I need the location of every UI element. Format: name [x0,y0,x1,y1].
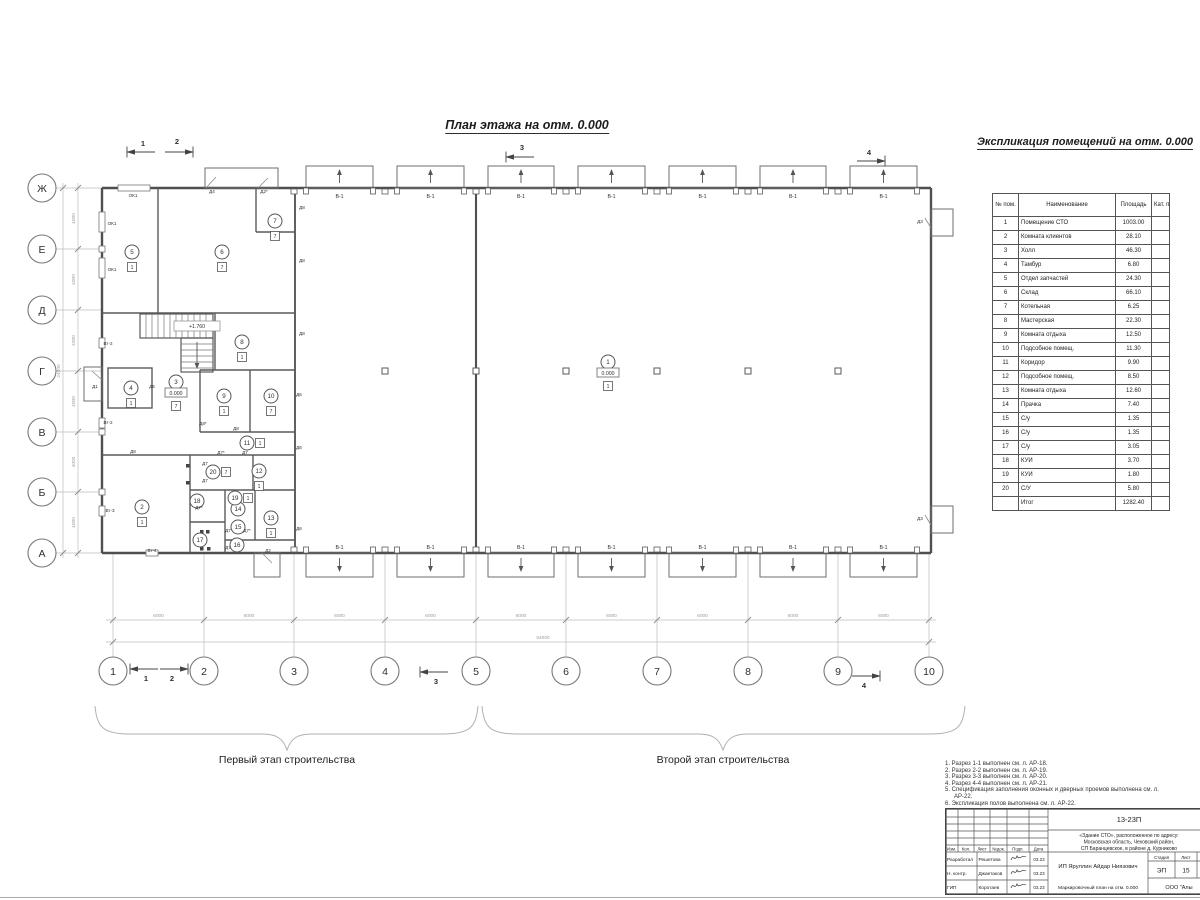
table-cell: Подсобное помещ. [1019,371,1116,385]
room-number: 13 [268,515,275,522]
table-cell: 8 [993,315,1019,329]
gate-arrow-head [609,169,614,175]
table-cell: 11 [993,357,1019,371]
table-cell [993,497,1019,511]
gate-post [758,547,763,553]
table-row: 11Коридор9.90 [993,357,1170,371]
door-label: Д7* [217,450,225,455]
gate-label: В-1 [335,194,343,200]
project-address: «Здание СТО», расположенное по адресу:Мо… [1079,833,1178,852]
table-row: 15С/у1.35 [993,413,1170,427]
column [563,368,569,374]
gate-arrow-head [519,566,524,572]
gate-arrow-head [519,169,524,175]
dimension-label: 24000 [56,364,62,378]
shaft-symbol [186,481,190,485]
table-cell [1152,483,1170,497]
floor-type-number: 1 [259,441,262,447]
table-cell [1152,427,1170,441]
table-cell [1152,259,1170,273]
table-cell [1152,287,1170,301]
sheet-notes: 1. Разрез 1-1 выполнен см. л. АР-18.2. Р… [945,761,1165,807]
shaft-symbol [186,464,190,468]
door-label: Д1 [92,384,98,389]
wall-pilaster [291,189,297,194]
stamp-text: Кол. [962,847,971,852]
table-row: 13Комната отдыха12.60 [993,385,1170,399]
room-table-body: 1Помещение СТО1003.002Комната клиентов28… [993,217,1170,511]
gate-label: В-1 [698,194,706,200]
table-cell: 5.80 [1116,483,1152,497]
door-label: Д3 [917,219,923,224]
table-cell: Котельная [1019,301,1116,315]
plan-title-text: План этажа на отм. 0.000 [445,118,609,134]
sheet-column-label: Лист [1181,855,1191,860]
door-label: Д5 [149,384,155,389]
table-cell: 28.10 [1116,231,1152,245]
grid-bubble-label: 7 [654,666,660,678]
gate-post [576,547,581,553]
room-number: 15 [235,524,242,531]
room-number: 17 [197,537,204,544]
stage2-label: Второй этап строительства [657,754,790,766]
door-label: Д6 [296,392,302,397]
gate-arrow-head [791,169,796,175]
note-line: 3. Разрез 3-3 выполнен см. л. АР-20. [945,774,1165,781]
stamp-text: Изм. [947,847,956,852]
table-cell: 7.40 [1116,399,1152,413]
table-cell: 66.10 [1116,287,1152,301]
gate-post [848,188,853,194]
floor-type-number: 1 [141,520,144,526]
wall-pilaster [654,189,660,194]
table-cell: 15 [993,413,1019,427]
stamp-text: 03.23 [1033,885,1045,890]
room-number: 4 [129,385,133,392]
door-label: Д7 [202,461,208,466]
dimension-label: 54000 [536,635,550,641]
table-cell: 3.70 [1116,455,1152,469]
dimension-label: 6000 [516,613,527,619]
room-number: 2 [140,504,144,511]
signature-squiggle [1011,870,1026,874]
stamp-text: Разработал [947,857,973,863]
gate-arrow-head [609,566,614,572]
company-name: ООО "Алы [1165,885,1192,891]
stage-value: ЭП [1157,868,1167,875]
table-row: 10Подсобное помещ.11.30 [993,343,1170,357]
gate-arrow-head [337,169,342,175]
table-header-cell: Наименование [1019,194,1116,217]
gate-label: В-1 [426,194,434,200]
door-label: Д8 [299,205,305,210]
door-label: Вт-2 [103,420,113,425]
table-cell: 11.30 [1116,343,1152,357]
door-label: Вт-3 [105,508,115,513]
gate-post [667,188,672,194]
door-label: Д3 [917,516,923,521]
grid-bubble-label: 10 [923,666,935,678]
vent-shaft-mark [99,489,105,495]
wall-pilaster [745,189,751,194]
floor-type-number: 1 [131,265,134,271]
door-leaf [258,178,268,188]
door-label: Д2* [260,189,268,194]
gate-label: В-1 [426,545,434,551]
note-line: 1. Разрез 1-1 выполнен см. л. АР-18. [945,761,1165,768]
room-number: 16 [234,542,241,549]
table-cell: 1.35 [1116,413,1152,427]
table-row: 4Тамбур6.80 [993,259,1170,273]
wall-pilaster [563,547,569,552]
floor-type-number: 1 [223,409,226,415]
table-title: Экспликация помещений на отм. 0.000 [977,136,1193,150]
table-cell: 6 [993,287,1019,301]
vent-shaft-mark [99,506,105,516]
table-cell: Прачка [1019,399,1116,413]
stage1-label: Первый этап строительства [219,754,355,766]
table-cell: Комната клиентов [1019,231,1116,245]
shaft-symbol [207,547,211,551]
floor-type-number: 1 [270,531,273,537]
table-row: 5Отдел запчастей24.30 [993,273,1170,287]
gate-post [371,547,376,553]
section-mark-label: 2 [170,674,174,683]
door-label: Д6 [296,526,302,531]
gate-arrow-head [791,566,796,572]
table-cell: 1.35 [1116,427,1152,441]
door-label: Д7 [225,545,231,550]
stamp-text: Подп. [1012,847,1023,852]
gate-post [304,188,309,194]
gate-post [824,547,829,553]
table-cell: Отдел запчастей [1019,273,1116,287]
table-cell: 12.50 [1116,329,1152,343]
section-mark-label: 3 [434,677,438,686]
wall-pilaster [473,547,479,552]
column [835,368,841,374]
room-number: 5 [130,249,134,256]
table-cell: Тамбур [1019,259,1116,273]
table-cell [1152,343,1170,357]
note-line: 2. Разрез 2-2 выполнен см. л. АР-19. [945,768,1165,775]
dimension-label: 4000 [71,213,77,224]
gate-label: В-1 [607,194,615,200]
room-table-header: № пом.НаименованиеПлощадьКат. пом. [993,194,1170,217]
porch [931,209,953,236]
gate-post [486,547,491,553]
porch [931,506,953,533]
table-header-cell: № пом. [993,194,1019,217]
door-label: Д4 [209,189,215,194]
dimension-label: 4000 [71,274,77,285]
room-number: 14 [235,506,242,513]
entrance-canopy [205,168,278,188]
table-cell: 1.80 [1116,469,1152,483]
window-mark [99,212,105,232]
gate-arrow-head [428,169,433,175]
table-cell [1152,329,1170,343]
gate-post [462,188,467,194]
door-label: Д7 [202,478,208,483]
section-mark-label: 1 [141,139,145,148]
table-cell: 8.50 [1116,371,1152,385]
table-cell [1152,217,1170,231]
door-label: Д8 [233,426,239,431]
table-cell: 17 [993,441,1019,455]
gate-post [758,188,763,194]
gate-post [734,188,739,194]
floor-type-number: 7 [274,234,277,240]
section-mark-label: 3 [520,143,524,152]
table-cell: 16 [993,427,1019,441]
grid-bubble-label: Е [38,244,45,256]
dimension-label: 6000 [788,613,799,619]
section-mark-label: 4 [862,681,867,690]
stamp-text: 03.23 [1033,857,1045,862]
table-cell: 20 [993,483,1019,497]
grid-bubble-label: А [38,548,45,560]
gate-label: В-1 [517,194,525,200]
column [382,368,388,374]
table-cell: С/у [1019,413,1116,427]
wall-pilaster [745,547,751,552]
table-cell: Мастерская [1019,315,1116,329]
gate-label: В-1 [607,545,615,551]
wall-pilaster [835,547,841,552]
dimension-label: 6000 [878,613,889,619]
window-mark [99,258,105,278]
gate-post [824,188,829,194]
table-cell: 3 [993,245,1019,259]
table-cell: 1 [993,217,1019,231]
table-cell: 14 [993,399,1019,413]
gate-post [395,547,400,553]
grid-bubble-label: Б [39,487,46,499]
vent-shaft-mark [99,246,105,252]
table-cell: 6.25 [1116,301,1152,315]
door-label: Д7 [242,450,248,455]
door-leaf [262,553,272,563]
stage-column-label: Стадия [1154,855,1170,860]
table-cell: 5 [993,273,1019,287]
table-row: 2Комната клиентов28.10 [993,231,1170,245]
table-cell [1152,469,1170,483]
table-row: 18КУИ3.70 [993,455,1170,469]
table-cell: 19 [993,469,1019,483]
table-cell [1152,441,1170,455]
door-label: Д8 [299,258,305,263]
table-cell: Помещение СТО [1019,217,1116,231]
table-cell [1152,455,1170,469]
column [654,368,660,374]
door-label: ОК1 [108,267,117,272]
door-label: Д8* [199,421,207,426]
stamp-text: Дата [1034,847,1044,852]
gate-arrow-head [337,566,342,572]
grid-bubble-label: Г [39,366,45,378]
level-mark: 0.000 [170,391,183,397]
dimension-label: 6000 [606,613,617,619]
grid-bubble-label: 6 [563,666,569,678]
gate-post [734,547,739,553]
table-cell: С/у [1019,441,1116,455]
room-number: 8 [240,339,244,346]
room-number: 12 [256,468,263,475]
table-cell [1152,399,1170,413]
floor-type-number: 7 [270,409,273,415]
table-header-cell: Площадь [1116,194,1152,217]
door-label: Д7* [243,528,251,533]
table-row: 19КУИ1.80 [993,469,1170,483]
table-cell: Склад [1019,287,1116,301]
table-row: 3Холл46.30 [993,245,1170,259]
table-cell [1152,497,1170,511]
column [745,368,751,374]
table-cell: Комната отдыха [1019,329,1116,343]
table-header-cell: Кат. пом. [1152,194,1170,217]
grid-bubble-label: 2 [201,666,207,678]
gate-arrow-head [881,169,886,175]
sheet-frame-line [0,897,1200,898]
stage-brace [482,706,965,750]
document-number: 13-23П [1117,815,1142,824]
dimension-label: 6000 [425,613,436,619]
section-mark-label: 1 [144,674,148,683]
wall-pilaster [382,189,388,194]
table-cell [1152,231,1170,245]
personnel-rows: РазработалРешетова03.23Н. контр.Джаетако… [947,856,1045,891]
table-row: 14Прачка7.40 [993,399,1170,413]
table-cell [1152,413,1170,427]
grid-bubble-label: Д [38,305,45,317]
stamp-text: Н. контр. [947,871,967,877]
stamp-text: ГИП [947,885,957,891]
table-cell [1152,245,1170,259]
table-cell: 7 [993,301,1019,315]
table-cell: 9.90 [1116,357,1152,371]
table-cell: Итог [1019,497,1116,511]
table-cell: 13 [993,385,1019,399]
table-row: 1Помещение СТО1003.00 [993,217,1170,231]
table-cell: 3.05 [1116,441,1152,455]
door-label: ОК1 [129,193,138,198]
grid-bubble-label: 1 [110,666,116,678]
table-cell [1152,273,1170,287]
table-row: 16С/у1.35 [993,427,1170,441]
table-cell: 1282.40 [1116,497,1152,511]
room-schedule-table: № пом.НаименованиеПлощадьКат. пом. 1Поме… [992,193,1170,511]
table-cell: 6.80 [1116,259,1152,273]
gate-post [915,188,920,194]
floor-type-number: 1 [130,401,133,407]
table-cell: 18 [993,455,1019,469]
floor-type-number: 1 [607,384,610,390]
door-leaf [92,371,102,380]
table-row: 12Подсобное помещ.8.50 [993,371,1170,385]
gate-arrow-head [700,169,705,175]
floor-type-number: 1 [258,484,261,490]
title-block: 13-23П «Здание СТО», расположенное по ад… [945,808,1200,895]
room-number: 11 [244,440,251,447]
level-mark: +1.760 [189,324,205,330]
dimension-label: 4000 [71,517,77,528]
gate-post [667,547,672,553]
client-name: ИП Яруллин Айдар Ниязович [1058,863,1137,870]
gate-post [371,188,376,194]
gate-label: В-1 [698,545,706,551]
table-cell: КУИ [1019,455,1116,469]
grid-bubble-label: 9 [835,666,841,678]
dimension-label: 4000 [71,396,77,407]
table-cell: 46.30 [1116,245,1152,259]
table-row: 17С/у3.05 [993,441,1170,455]
stamp-text: СП Баранцевское, в районе д. Курниково [1081,845,1177,852]
table-row: 6Склад66.10 [993,287,1170,301]
gate-arrow-head [428,566,433,572]
plan-title: План этажа на отм. 0.000 [445,118,609,134]
sheet-value: 15 [1182,868,1190,875]
gate-label: В-1 [879,194,887,200]
table-cell: 12.60 [1116,385,1152,399]
dimension-label: 4000 [71,456,77,467]
stamp-text: 03.23 [1033,871,1045,876]
table-cell [1152,301,1170,315]
shaft-symbol [200,547,204,551]
wall-pilaster [563,189,569,194]
room-number: 6 [220,249,224,256]
gate-post [848,547,853,553]
gate-arrow-head [700,566,705,572]
gate-label: В-1 [789,545,797,551]
gate-post [462,547,467,553]
column [473,368,479,374]
table-row: 7Котельная6.25 [993,301,1170,315]
stamp-text: Лист [977,847,986,852]
table-cell: Подсобное помещ. [1019,343,1116,357]
door-label: Д7 [225,528,231,533]
gate-post [552,188,557,194]
table-cell: 9 [993,329,1019,343]
window-mark [118,185,150,191]
gate-post [395,188,400,194]
room-number: 1 [606,359,610,366]
table-cell: Коридор [1019,357,1116,371]
sheet-title: Маркировочный план на отм. 0.000 [1058,884,1138,891]
vent-shaft-mark [99,429,105,435]
stamp-text: Джаетаков [979,871,1003,877]
door-label: Д2 [265,548,271,553]
dimension-label: 6000 [334,613,345,619]
floor-type-number: 7 [221,265,224,271]
gate-label: В-1 [789,194,797,200]
porch [254,553,280,577]
door-label: Д6 [296,445,302,450]
floor-type-number: 1 [247,496,250,502]
grid-bubble-label: Ж [37,183,47,195]
gate-post [486,188,491,194]
wall-pilaster [654,547,660,552]
wall-pilaster [291,547,297,552]
gate-post [915,547,920,553]
signature-squiggle [1011,884,1026,888]
grid-bubble-label: 5 [473,666,479,678]
dimension-label: 6000 [697,613,708,619]
door-label: Вт-2 [103,341,113,346]
room-number: 19 [232,495,239,502]
door-label: Д8 [130,449,136,454]
table-cell: 24.30 [1116,273,1152,287]
